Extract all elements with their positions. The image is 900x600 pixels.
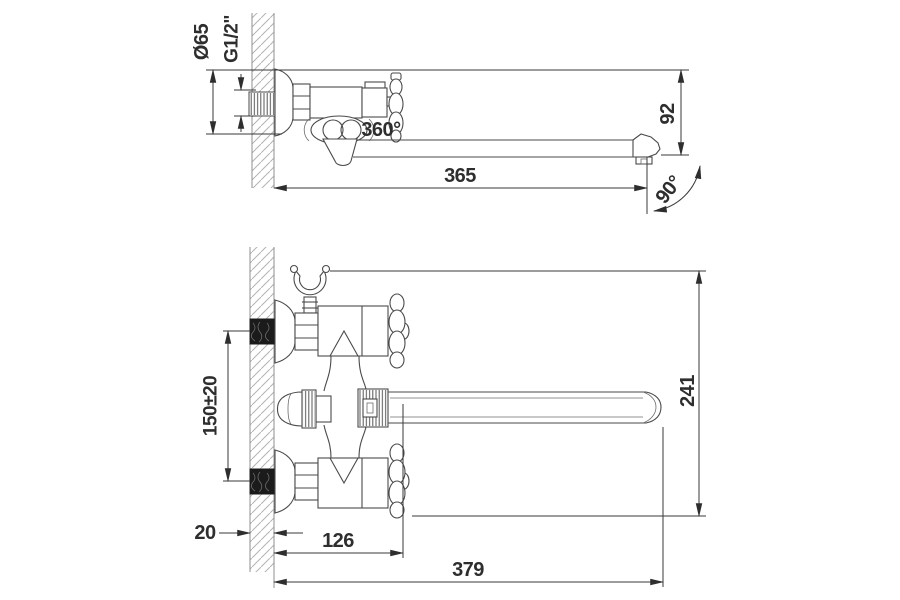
- dim-label-centers-150: 150±20: [201, 376, 222, 436]
- dim-label-swivel-360: 360°: [361, 119, 401, 141]
- dimension-swing-angle: 90°: [647, 157, 700, 214]
- eccentric-fitting-bottom: [250, 469, 274, 494]
- side-view-drawing: Ø65 G1/2" 360° 365 92 90°: [191, 13, 700, 214]
- spout-tip-side: [633, 134, 660, 157]
- front-view-drawing: 241 150±20 20 126 379: [194, 247, 706, 588]
- dim-label-thread-g12: G1/2": [222, 15, 243, 63]
- dimension-wall-offset: 20: [194, 522, 303, 544]
- supply-thread: [249, 92, 276, 116]
- eccentric-fitting-top: [250, 319, 274, 344]
- spout-tip-front: [646, 392, 661, 423]
- dim-label-length-365: 365: [444, 165, 476, 187]
- dimension-inlet-centers: 150±20: [201, 331, 251, 481]
- handwheel-bottom: [389, 444, 409, 518]
- dim-label-offset-20: 20: [194, 522, 216, 544]
- dimension-spout-length: 365: [274, 165, 647, 188]
- dim-label-width-379: 379: [452, 559, 484, 581]
- dim-label-width-126: 126: [322, 530, 354, 552]
- valve-bottom: [275, 450, 388, 513]
- diverter-knob: [278, 390, 332, 428]
- technical-drawing-page: Ø65 G1/2" 360° 365 92 90°: [0, 0, 900, 600]
- faucet-dimension-drawing: Ø65 G1/2" 360° 365 92 90°: [0, 0, 900, 600]
- valve-top: [275, 300, 388, 363]
- dim-label-height-92: 92: [657, 103, 679, 125]
- dim-label-diameter-65: Ø65: [191, 23, 213, 60]
- handwheel-top: [389, 294, 409, 368]
- wall-section-front: [250, 247, 274, 588]
- dimension-spout-height: 92: [657, 70, 689, 155]
- aerator: [636, 157, 652, 164]
- dim-label-angle-90: 90°: [651, 172, 686, 209]
- dim-label-height-241: 241: [677, 375, 699, 407]
